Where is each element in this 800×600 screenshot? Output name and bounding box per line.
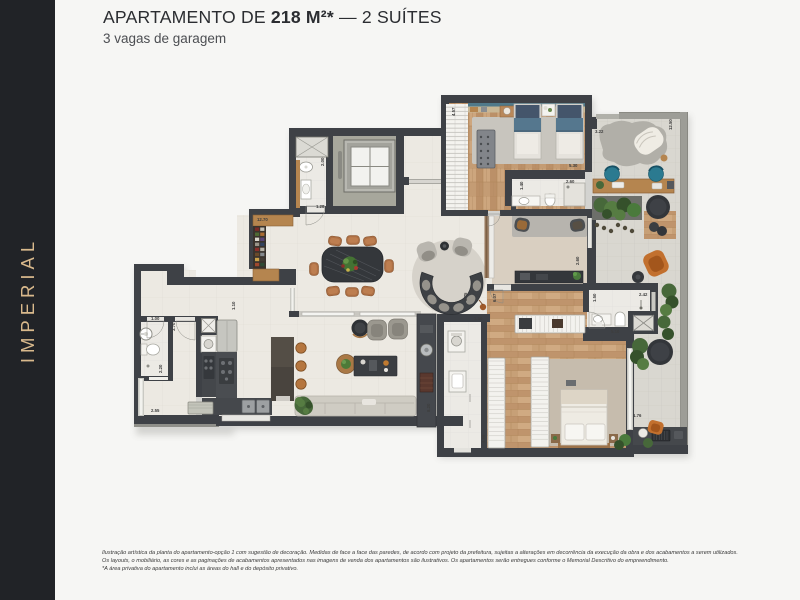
svg-text:2.55: 2.55	[151, 408, 160, 413]
svg-text:1.28: 1.28	[316, 204, 325, 209]
svg-text:5.30: 5.30	[569, 163, 578, 168]
svg-text:4.57: 4.57	[451, 107, 456, 116]
svg-text:4.99: 4.99	[481, 434, 486, 443]
svg-text:2.00: 2.00	[320, 157, 325, 166]
svg-text:1.40: 1.40	[519, 181, 524, 190]
svg-text:5.10: 5.10	[611, 329, 620, 334]
svg-text:3.22: 3.22	[595, 129, 604, 134]
svg-text:2.60: 2.60	[575, 256, 580, 265]
svg-text:6.07: 6.07	[492, 293, 497, 302]
svg-text:2.42: 2.42	[639, 292, 648, 297]
svg-text:3.70: 3.70	[171, 322, 176, 331]
svg-text:3.75: 3.75	[463, 292, 468, 301]
svg-text:12.70: 12.70	[257, 217, 268, 222]
svg-text:1.50: 1.50	[474, 316, 483, 321]
svg-text:1.76: 1.76	[633, 413, 642, 418]
svg-text:8.20: 8.20	[426, 403, 431, 412]
svg-text:12.50: 12.50	[668, 119, 673, 130]
svg-text:1.00: 1.00	[151, 316, 160, 321]
svg-text:2.60: 2.60	[566, 179, 575, 184]
svg-text:1.10: 1.10	[231, 301, 236, 310]
svg-text:2.20: 2.20	[158, 364, 163, 373]
svg-text:1.50: 1.50	[592, 293, 597, 302]
